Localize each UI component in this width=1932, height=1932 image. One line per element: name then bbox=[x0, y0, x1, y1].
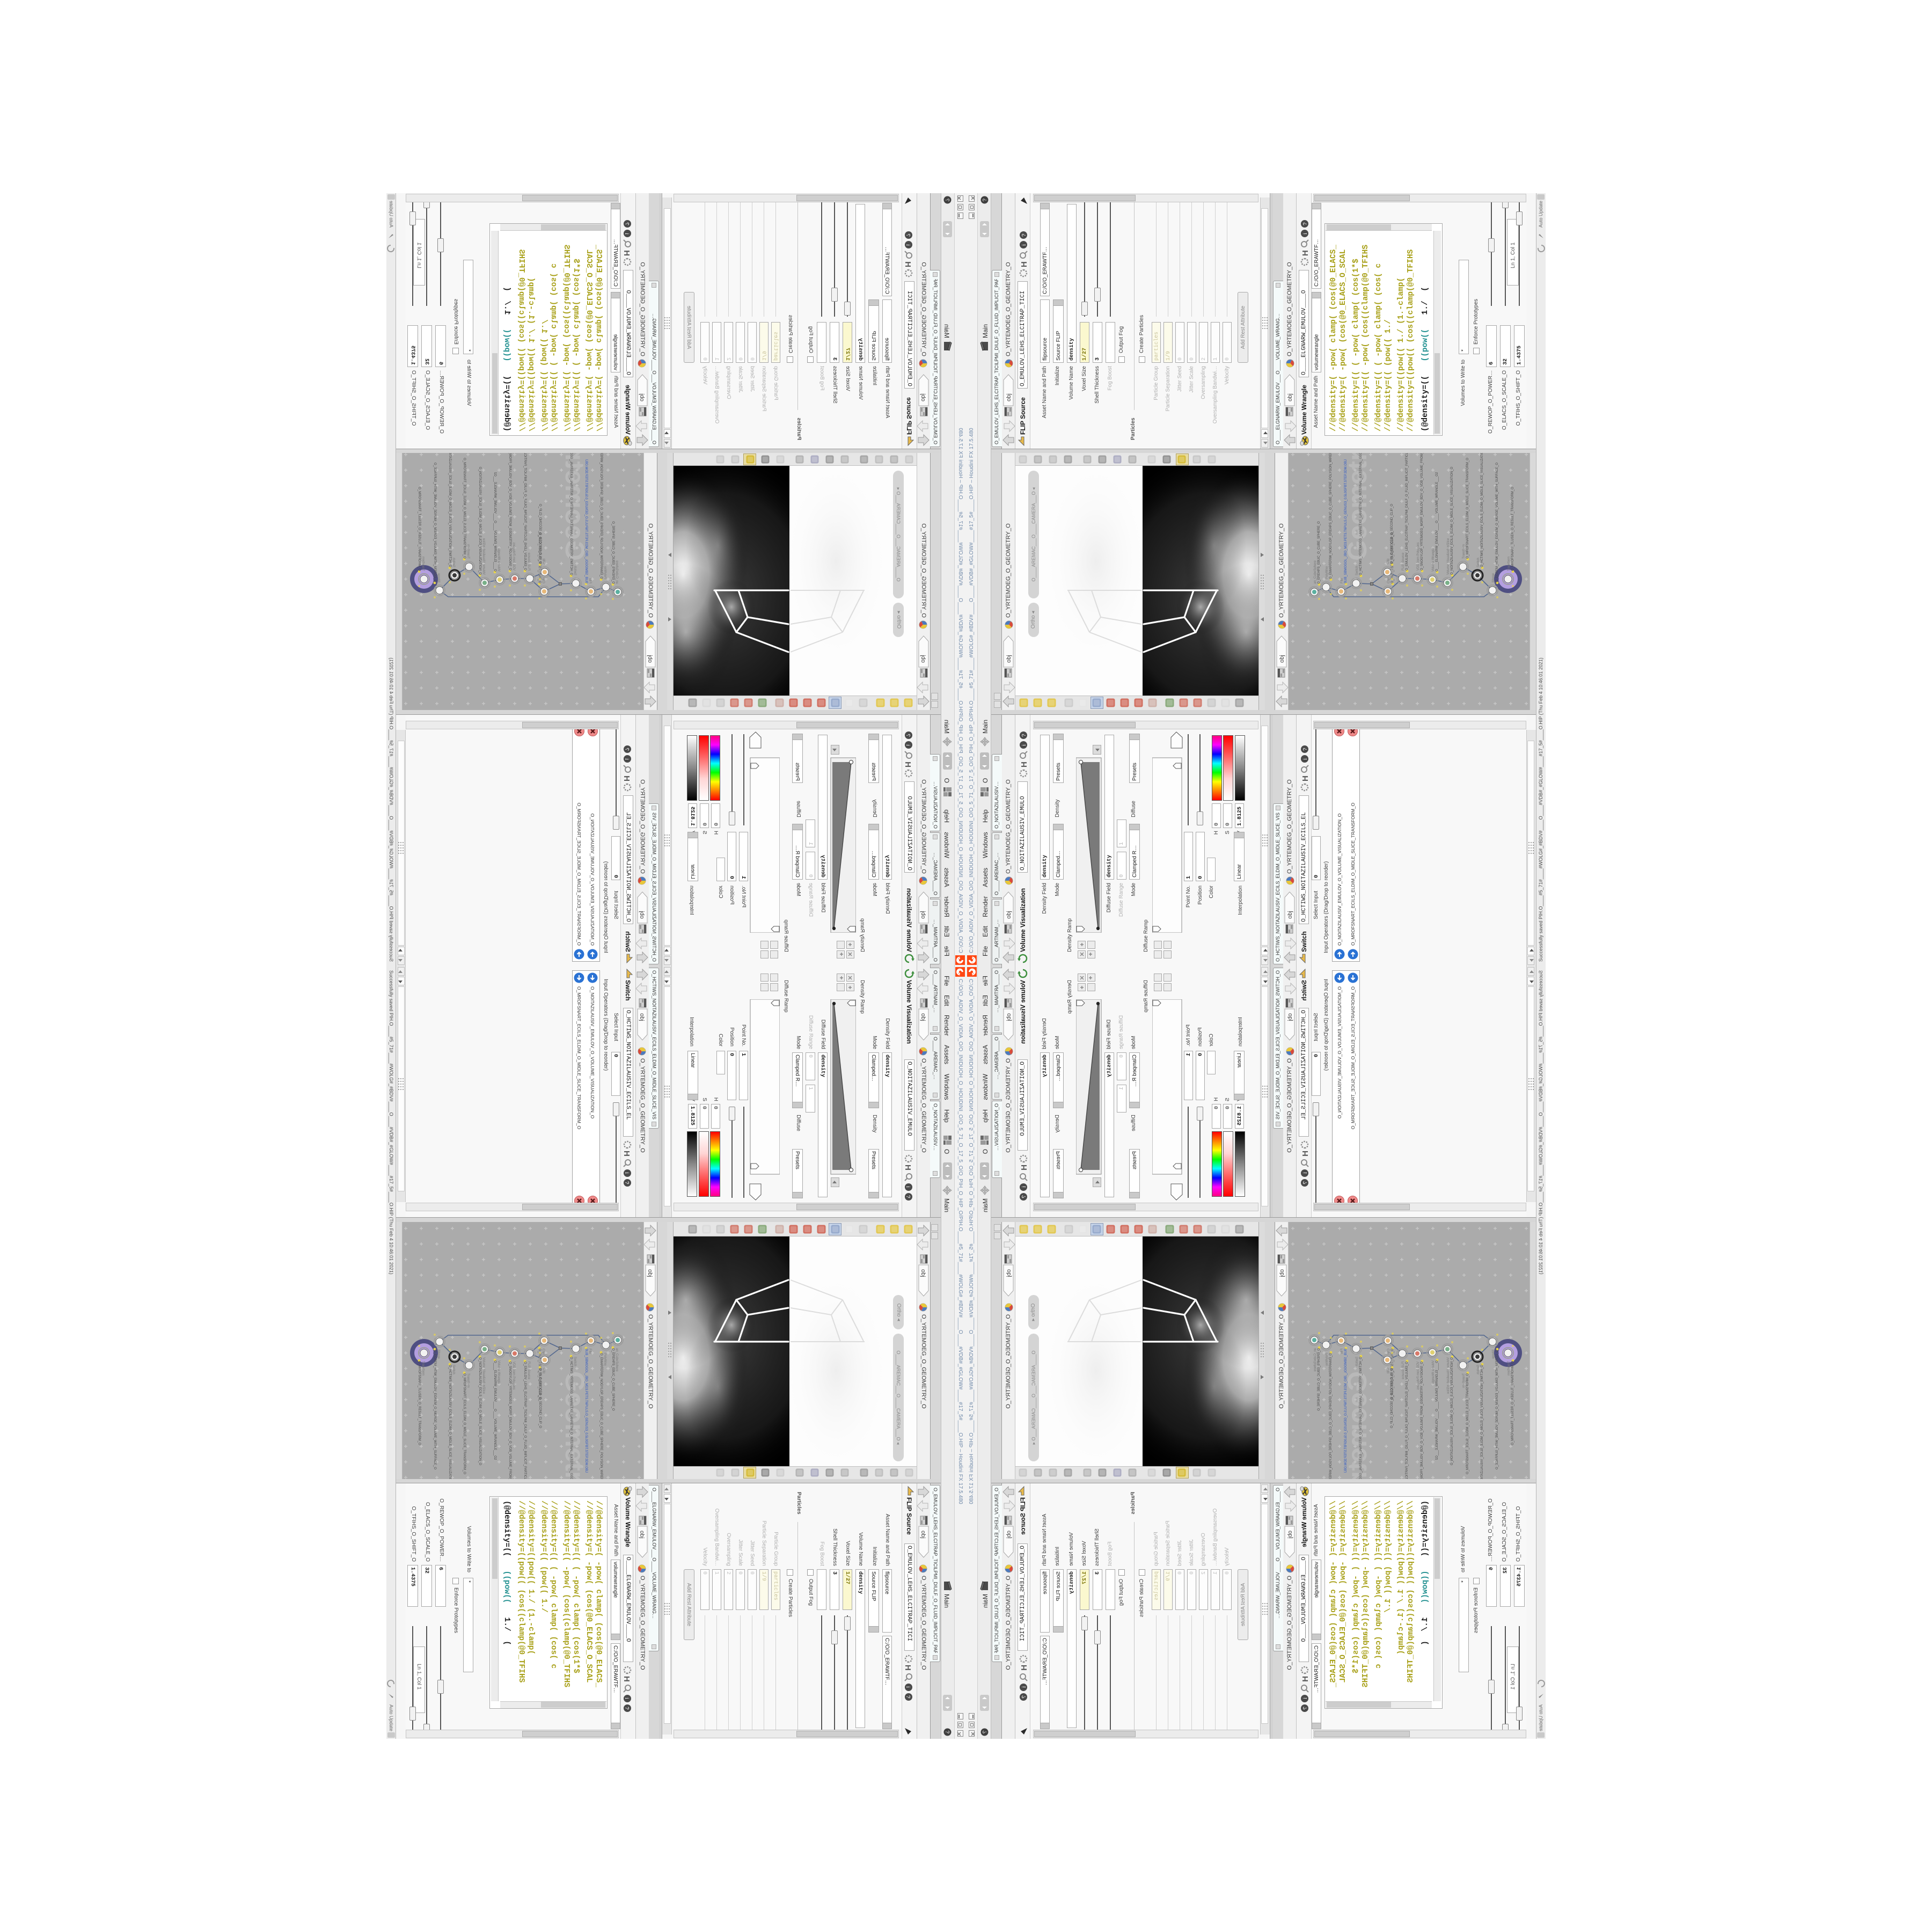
svg-text:obj: obj bbox=[639, 1013, 645, 1021]
svg-text:an_CubeSphere: an_CubeSphere bbox=[1314, 560, 1317, 584]
svg-text:O_PILC_DNOCES_O_SECOND_CLIP_O: O_PILC_DNOCES_O_SECOND_CLIP_O bbox=[538, 1368, 541, 1428]
svg-text:O_SNOGYLOP_YRTEMOEG_MORF_EMULO: O_SNOGYLOP_YRTEMOEG_MORF_EMULOV_BDV_O_VD… bbox=[508, 1362, 511, 1479]
svg-text:O_EGREM_HTIW_EMULOV_EGREM_O_ME: O_EGREM_HTIW_EMULOV_EGREM_O_MERGE_VOLUME… bbox=[1496, 463, 1499, 582]
svg-text:O_NOITAZILAUSIV_ECILS_ELDIM_O_: O_NOITAZILAUSIV_ECILS_ELDIM_O_MIDLE_SLIC… bbox=[1451, 1357, 1454, 1466]
svg-text:O_EMARFERIW_NOGYLOP_EREHPS_EBU: O_EMARFERIW_NOGYLOP_EREHPS_EBUC_O_CUBE_S… bbox=[1329, 453, 1333, 579]
svg-text:Merge: Merge bbox=[437, 1350, 440, 1359]
svg-text:?: ? bbox=[905, 233, 911, 237]
svg-text:obj: obj bbox=[1279, 1269, 1285, 1277]
svg-text:H: H bbox=[1020, 762, 1029, 767]
svg-text:obj: obj bbox=[639, 911, 645, 919]
svg-text:Switch: Switch bbox=[452, 558, 455, 567]
svg-text:obj: obj bbox=[647, 1269, 653, 1277]
svg-text:Transform: Transform bbox=[466, 1373, 470, 1388]
svg-text:i: i bbox=[624, 1697, 630, 1699]
svg-text:O_HCTIWS_YRTEMOEG_LANRETXE_LAN: O_HCTIWS_YRTEMOEG_LANRETXE_LANRETNI_O_IN… bbox=[1359, 453, 1363, 575]
svg-text:obj: obj bbox=[1287, 1531, 1293, 1539]
svg-text:VDB from Polygons: VDB from Polygons bbox=[512, 543, 515, 570]
svg-text:?: ? bbox=[1302, 1707, 1308, 1710]
svg-text:obj: obj bbox=[639, 393, 645, 401]
svg-text:Volume Wrangle: Volume Wrangle bbox=[1432, 547, 1435, 572]
svg-text:?: ? bbox=[1021, 1195, 1027, 1198]
svg-text:PolyWire: PolyWire bbox=[603, 566, 606, 579]
svg-text:?: ? bbox=[1302, 1181, 1308, 1184]
svg-text:O_EMARFERIW_NOGYLOP_EREHPS_EBU: O_EMARFERIW_NOGYLOP_EREHPS_EBUC_O_CUBE_S… bbox=[1329, 1353, 1333, 1479]
svg-text:O_EMULOV_LEHS_ELCITRAP_TICILPM: O_EMULOV_LEHS_ELCITRAP_TICILPMI_DIULF_O_… bbox=[1406, 453, 1409, 570]
svg-text:obj: obj bbox=[1006, 1531, 1012, 1539]
svg-text:obj: obj bbox=[1006, 655, 1012, 663]
svg-text:Transform: Transform bbox=[466, 544, 470, 559]
svg-text:Clip: Clip bbox=[1387, 1368, 1390, 1374]
svg-text:obj: obj bbox=[1006, 1013, 1012, 1021]
svg-text:?: ? bbox=[1021, 734, 1027, 737]
svg-text:Volume Wrangle: Volume Wrangle bbox=[497, 1360, 500, 1385]
svg-text:Volume VisualizationSlice: Volume VisualizationSlice bbox=[482, 538, 485, 575]
svg-text:O_MROFSNART_TLUSER_O_RESULT_TR: O_MROFSNART_TLUSER_O_RESULT_TRANSFORM_O bbox=[418, 1361, 421, 1445]
svg-text:O_HCTIWS_NOITAZILAUSIV_ECILS_E: O_HCTIWS_NOITAZILAUSIV_ECILS_ELDIM_O_MID… bbox=[1481, 1365, 1484, 1479]
svg-text:O_NOITAZILAUSIV_ECILS_ELDIM_O_: O_NOITAZILAUSIV_ECILS_ELDIM_O_MIDLE_SLIC… bbox=[478, 466, 481, 575]
svg-text:?: ? bbox=[1302, 748, 1308, 751]
svg-text:an_CubeSphere: an_CubeSphere bbox=[615, 560, 618, 584]
svg-text:H: H bbox=[1301, 1151, 1310, 1157]
svg-text:BUB_SBMOGOL_JBO_MD3.PETS.T6PUL: BUB_SBMOGOL_JBO_MD3.PETS.T6PULS.O_GENUS3… bbox=[584, 459, 588, 583]
svg-text:obj: obj bbox=[1287, 911, 1293, 919]
svg-text:Switch: Switch bbox=[573, 1357, 576, 1366]
svg-text:obj: obj bbox=[1006, 393, 1012, 401]
svg-text:i: i bbox=[1021, 744, 1027, 746]
svg-text:Clip: Clip bbox=[1387, 1349, 1391, 1355]
svg-text:H: H bbox=[1020, 261, 1029, 267]
svg-text:i: i bbox=[1021, 1186, 1027, 1188]
svg-text:File: File bbox=[1341, 578, 1344, 583]
svg-text:i: i bbox=[905, 744, 911, 746]
svg-text:O_HCTIWS_NOITAZILAUSIV_ECILS_E: O_HCTIWS_NOITAZILAUSIV_ECILS_ELDIM_O_MID… bbox=[448, 453, 451, 567]
svg-text:O_EMULOV_LEHS_ELCITRAP_TICILPM: O_EMULOV_LEHS_ELCITRAP_TICILPMI_DIULF_O_… bbox=[523, 453, 526, 570]
svg-text:FLIP Source: FLIP Source bbox=[1402, 552, 1405, 570]
svg-text:H: H bbox=[622, 250, 631, 256]
svg-text:File: File bbox=[588, 1349, 591, 1354]
svg-text:BUB_SBMOGOL_JBO_MD3.PETS.T6PUL: BUB_SBMOGOL_JBO_MD3.PETS.T6PULS.O_GENUS3… bbox=[584, 1349, 588, 1473]
svg-text:i: i bbox=[905, 1186, 911, 1188]
svg-text:obj: obj bbox=[1006, 911, 1012, 919]
svg-text:?: ? bbox=[944, 199, 950, 202]
svg-text:obj: obj bbox=[1279, 655, 1285, 663]
svg-text:?: ? bbox=[982, 1731, 988, 1734]
svg-text:O_HCTIWS_YRTEMOEG_LANRETXE_LAN: O_HCTIWS_YRTEMOEG_LANRETXE_LANRETNI_O_IN… bbox=[569, 453, 573, 575]
svg-text:O_EMULOV_LEHS_ELCITRAP_TICILPM: O_EMULOV_LEHS_ELCITRAP_TICILPMI_DIULF_O_… bbox=[1406, 1362, 1409, 1479]
svg-text:?: ? bbox=[982, 199, 988, 202]
svg-text:O_HCTIWS_YRTEMOEG_LANRETXE_LAN: O_HCTIWS_YRTEMOEG_LANRETXE_LANRETNI_O_IN… bbox=[1359, 1357, 1363, 1479]
svg-text:Switch: Switch bbox=[1477, 1365, 1480, 1374]
svg-text:H: H bbox=[903, 762, 912, 767]
svg-text:File: File bbox=[588, 578, 591, 583]
svg-text:obj: obj bbox=[639, 1531, 645, 1539]
svg-text:O_NOITAZILAUSIV_ECILS_ELDIM_O_: O_NOITAZILAUSIV_ECILS_ELDIM_O_MIDLE_SLIC… bbox=[1451, 466, 1454, 575]
svg-text:i: i bbox=[624, 1172, 630, 1174]
svg-text:i: i bbox=[905, 244, 911, 246]
svg-text:O_HCTIWS_NOITAZILAUSIV_ECILS_E: O_HCTIWS_NOITAZILAUSIV_ECILS_ELDIM_O_MID… bbox=[1481, 453, 1484, 567]
svg-text:obj: obj bbox=[920, 655, 926, 663]
svg-text:Transform: Transform bbox=[1507, 557, 1511, 571]
svg-text:O_MROFSNART_TLUSER_O_RESULT_TR: O_MROFSNART_TLUSER_O_RESULT_TRANSFORM_O bbox=[1511, 1361, 1514, 1445]
svg-text:O____ELGNARW_EMULOV____O____VO: O____ELGNARW_EMULOV____O____VOLUME_WRANG… bbox=[1436, 1360, 1439, 1460]
svg-text:O_SNOGYLOP_YRTEMOEG_MORF_EMULO: O_SNOGYLOP_YRTEMOEG_MORF_EMULOV_BDV_O_VD… bbox=[1421, 453, 1424, 570]
svg-text:O_MROFSNART_TLUSER_O_RESULT_TR: O_MROFSNART_TLUSER_O_RESULT_TRANSFORM_O bbox=[1511, 487, 1514, 571]
svg-text:BUB_SBMOGOL_JBO_MD3.PETS.T6PUL: BUB_SBMOGOL_JBO_MD3.PETS.T6PULS.O_GENUS3… bbox=[1344, 459, 1348, 583]
svg-text:i: i bbox=[905, 1686, 911, 1688]
svg-text:H: H bbox=[1020, 1665, 1029, 1671]
svg-text:O_PILC_DNOCES_O_SECOND_CLIP_O: O_PILC_DNOCES_O_SECOND_CLIP_O bbox=[538, 504, 541, 564]
svg-text:O_EGREM_HTIW_EMULOV_EGREM_O_ME: O_EGREM_HTIW_EMULOV_EGREM_O_MERGE_VOLUME… bbox=[1496, 1350, 1499, 1469]
svg-text:O____ELGNARW_EMULOV____O____VO: O____ELGNARW_EMULOV____O____VOLUME_WRANG… bbox=[493, 1360, 496, 1460]
svg-text:H: H bbox=[903, 1165, 912, 1170]
svg-text:PolyWire: PolyWire bbox=[1326, 1353, 1329, 1366]
svg-text:Transform: Transform bbox=[421, 557, 425, 571]
svg-text:an_CubeSphere: an_CubeSphere bbox=[1314, 1348, 1317, 1372]
svg-text:obj: obj bbox=[920, 911, 926, 919]
svg-text:obj: obj bbox=[920, 393, 926, 401]
svg-text:obj: obj bbox=[1287, 393, 1293, 401]
svg-text:?: ? bbox=[624, 222, 630, 225]
svg-text:?: ? bbox=[624, 1707, 630, 1710]
svg-text:?: ? bbox=[624, 748, 630, 751]
svg-text:H: H bbox=[622, 1151, 631, 1157]
svg-text:Transform: Transform bbox=[1507, 1361, 1511, 1375]
svg-text:H: H bbox=[903, 261, 912, 267]
svg-text:Merge: Merge bbox=[437, 573, 440, 582]
svg-text:i: i bbox=[1302, 233, 1308, 235]
svg-text:obj: obj bbox=[647, 655, 653, 663]
svg-text:obj: obj bbox=[920, 1531, 926, 1539]
svg-text:?: ? bbox=[1302, 222, 1308, 225]
svg-text:Transform: Transform bbox=[1462, 544, 1466, 559]
svg-text:PolyWire: PolyWire bbox=[603, 1353, 606, 1366]
svg-text:H: H bbox=[1301, 250, 1310, 256]
svg-text:Volume VisualizationSlice: Volume VisualizationSlice bbox=[1447, 538, 1450, 575]
svg-text:O_SNOGYLOP_YRTEMOEG_MORF_EMULO: O_SNOGYLOP_YRTEMOEG_MORF_EMULOV_BDV_O_VD… bbox=[1421, 1362, 1424, 1479]
svg-text:Transform: Transform bbox=[421, 1361, 425, 1375]
svg-text:obj: obj bbox=[1006, 1269, 1012, 1277]
svg-text:O_EGREM_HTIW_EMULOV_EGREM_O_ME: O_EGREM_HTIW_EMULOV_EGREM_O_MERGE_VOLUME… bbox=[433, 1350, 436, 1469]
svg-text:File: File bbox=[1341, 1349, 1344, 1354]
svg-text:O_EMARFERIW_NOGYLOP_EREHPS_EBU: O_EMARFERIW_NOGYLOP_EREHPS_EBUC_O_CUBE_S… bbox=[599, 1353, 603, 1479]
svg-text:H: H bbox=[1301, 1676, 1310, 1682]
svg-text:Clip: Clip bbox=[542, 558, 545, 564]
svg-text:Switch: Switch bbox=[573, 566, 576, 575]
svg-text:i: i bbox=[1302, 1697, 1308, 1699]
svg-text:Clip: Clip bbox=[541, 1349, 545, 1355]
svg-text:obj: obj bbox=[920, 1269, 926, 1277]
svg-text:O_PILC_DNOCES_O_SECOND_CLIP_O: O_PILC_DNOCES_O_SECOND_CLIP_O bbox=[1391, 504, 1394, 564]
svg-text:O_PILC_DNOCES_O_SECOND_CLIP_O: O_PILC_DNOCES_O_SECOND_CLIP_O bbox=[1391, 1368, 1394, 1428]
svg-text:O_EMULOV_LEHS_ELCITRAP_TICILPM: O_EMULOV_LEHS_ELCITRAP_TICILPMI_DIULF_O_… bbox=[523, 1362, 526, 1479]
svg-text:i: i bbox=[1302, 1172, 1308, 1174]
svg-text:i: i bbox=[624, 233, 630, 235]
svg-text:Clip: Clip bbox=[1387, 577, 1391, 583]
svg-text:?: ? bbox=[1021, 1695, 1027, 1699]
svg-text:H: H bbox=[1020, 1165, 1029, 1170]
svg-text:Merge: Merge bbox=[1492, 573, 1495, 582]
svg-text:Switch: Switch bbox=[1356, 566, 1359, 575]
svg-text:O_MROFSNART_TLUSER_O_RESULT_TR: O_MROFSNART_TLUSER_O_RESULT_TRANSFORM_O bbox=[418, 487, 421, 571]
svg-text:?: ? bbox=[905, 1195, 911, 1198]
svg-text:Volume VisualizationSlice: Volume VisualizationSlice bbox=[1447, 1357, 1450, 1394]
svg-text:Clip: Clip bbox=[541, 577, 545, 583]
svg-text:BUB_SBMOGOL_JBO_MD3.PETS.T6PUL: BUB_SBMOGOL_JBO_MD3.PETS.T6PULS.O_GENUS3… bbox=[1344, 1349, 1348, 1473]
svg-text:i: i bbox=[624, 758, 630, 760]
svg-text:?: ? bbox=[905, 734, 911, 737]
svg-text:O____ELGNARW_EMULOV____O____VO: O____ELGNARW_EMULOV____O____VOLUME_WRANG… bbox=[493, 472, 496, 572]
svg-text:Volume Wrangle: Volume Wrangle bbox=[1432, 1360, 1435, 1385]
svg-text:H: H bbox=[903, 1665, 912, 1671]
svg-text:VDB from Polygons: VDB from Polygons bbox=[512, 1362, 515, 1389]
svg-text:FLIP Source: FLIP Source bbox=[1402, 1362, 1405, 1380]
svg-text:VDB from Polygons: VDB from Polygons bbox=[1417, 543, 1420, 570]
svg-text:O_SNOGYLOP_YRTEMOEG_MORF_EMULO: O_SNOGYLOP_YRTEMOEG_MORF_EMULOV_BDV_O_VD… bbox=[508, 453, 511, 570]
svg-text:obj: obj bbox=[920, 1013, 926, 1021]
svg-text:O_HCTIWS_NOITAZILAUSIV_ECILS_E: O_HCTIWS_NOITAZILAUSIV_ECILS_ELDIM_O_MID… bbox=[448, 1365, 451, 1479]
svg-text:?: ? bbox=[905, 1695, 911, 1699]
svg-text:obj: obj bbox=[1287, 1013, 1293, 1021]
svg-text:O_HCTIWS_YRTEMOEG_LANRETXE_LAN: O_HCTIWS_YRTEMOEG_LANRETXE_LANRETNI_O_IN… bbox=[569, 1357, 573, 1479]
svg-text:i: i bbox=[1021, 244, 1027, 246]
svg-text:?: ? bbox=[1021, 233, 1027, 237]
svg-text:O_MROFSNART_ECILS_ELDIM_O_MIDL: O_MROFSNART_ECILS_ELDIM_O_MIDLE_SLICE_TR… bbox=[1466, 458, 1469, 559]
svg-text:Merge: Merge bbox=[1492, 1350, 1495, 1359]
svg-text:H: H bbox=[622, 775, 631, 781]
svg-text:Switch: Switch bbox=[1477, 558, 1480, 567]
svg-text:O____ELGNARW_EMULOV____O____VO: O____ELGNARW_EMULOV____O____VOLUME_WRANG… bbox=[1436, 472, 1439, 572]
svg-text:O_EGREM_HTIW_EMULOV_EGREM_O_ME: O_EGREM_HTIW_EMULOV_EGREM_O_MERGE_VOLUME… bbox=[433, 463, 436, 582]
svg-text:?: ? bbox=[624, 1181, 630, 1184]
svg-text:O_EMARFERIW_NOGYLOP_EREHPS_EBU: O_EMARFERIW_NOGYLOP_EREHPS_EBUC_O_CUBE_S… bbox=[599, 453, 603, 579]
svg-text:H: H bbox=[1301, 775, 1310, 781]
svg-text:FLIP Source: FLIP Source bbox=[527, 552, 530, 570]
svg-text:Clip: Clip bbox=[1387, 558, 1390, 564]
svg-text:i: i bbox=[1021, 1686, 1027, 1688]
svg-text:H: H bbox=[622, 1676, 631, 1682]
svg-text:O_MROFSNART_ECILS_ELDIM_O_MIDL: O_MROFSNART_ECILS_ELDIM_O_MIDLE_SLICE_TR… bbox=[1466, 1373, 1469, 1474]
svg-text:Switch: Switch bbox=[452, 1365, 455, 1374]
svg-text:i: i bbox=[1302, 758, 1308, 760]
svg-text:PolyWire: PolyWire bbox=[1326, 566, 1329, 579]
svg-text:Switch: Switch bbox=[1356, 1357, 1359, 1366]
svg-text:?: ? bbox=[944, 1731, 950, 1734]
svg-text:an_CubeSphere: an_CubeSphere bbox=[615, 1348, 618, 1372]
svg-text:FLIP Source: FLIP Source bbox=[527, 1362, 530, 1380]
svg-text:Transform: Transform bbox=[1462, 1373, 1466, 1388]
svg-text:Clip: Clip bbox=[542, 1368, 545, 1374]
svg-text:O_NOITAZILAUSIV_ECILS_ELDIM_O_: O_NOITAZILAUSIV_ECILS_ELDIM_O_MIDLE_SLIC… bbox=[478, 1357, 481, 1466]
svg-text:Volume Wrangle: Volume Wrangle bbox=[497, 547, 500, 572]
svg-text:Volume VisualizationSlice: Volume VisualizationSlice bbox=[482, 1357, 485, 1394]
svg-text:VDB from Polygons: VDB from Polygons bbox=[1417, 1362, 1420, 1389]
